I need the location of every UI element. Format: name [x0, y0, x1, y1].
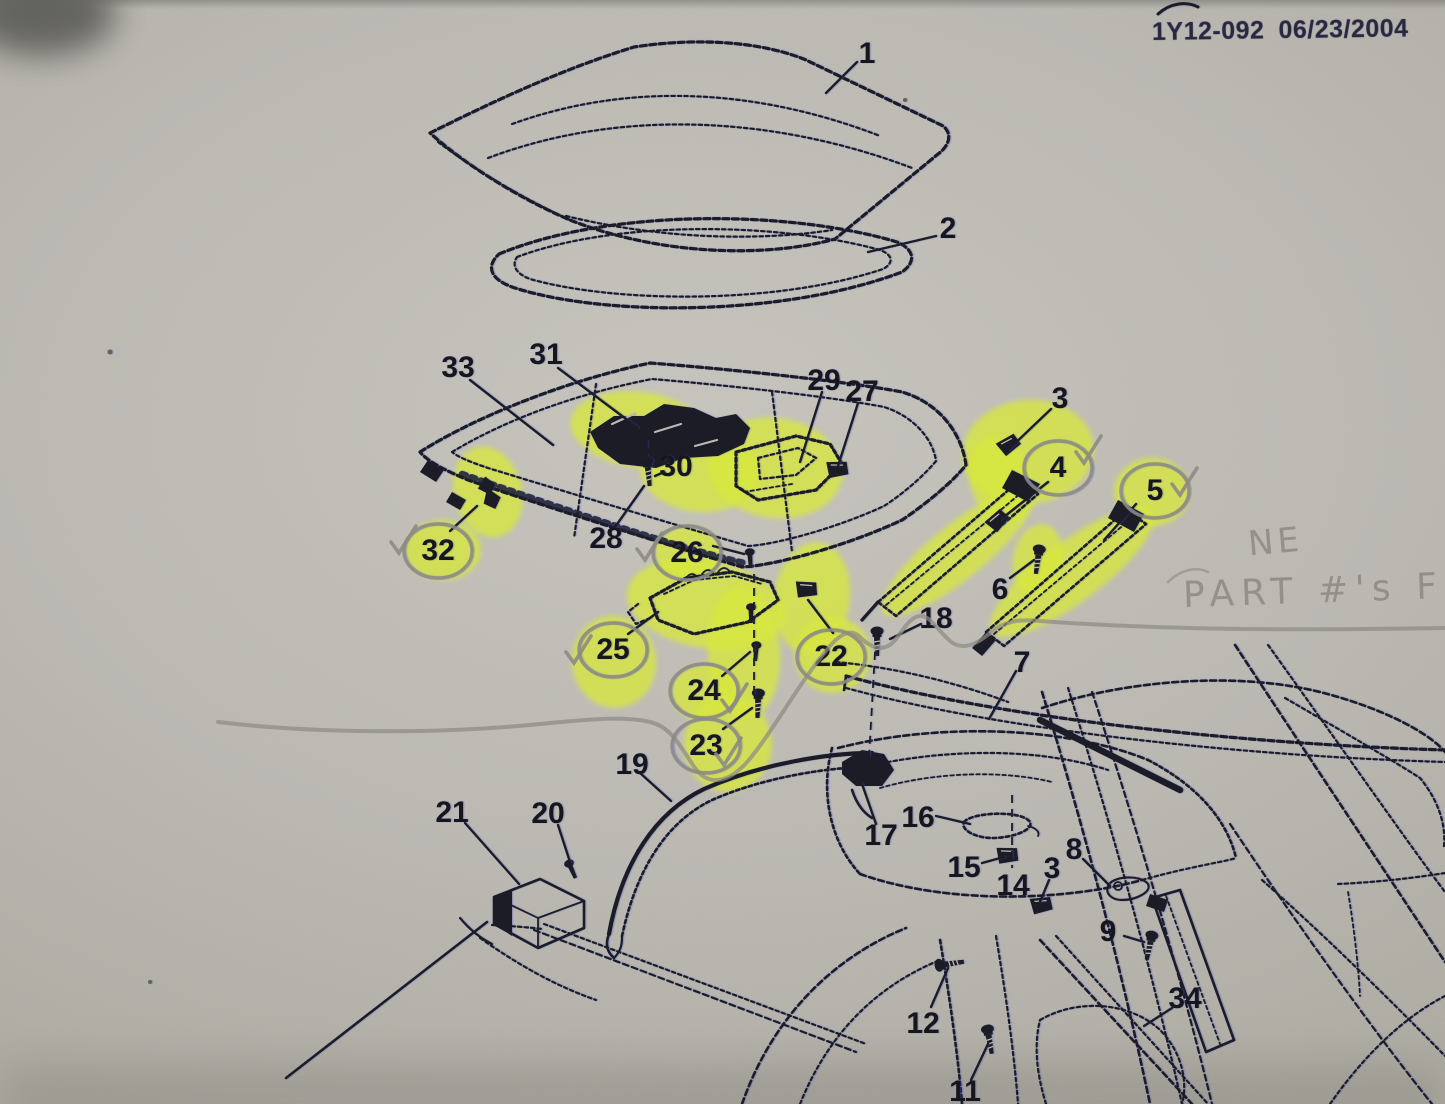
part-label-20: 20	[531, 797, 564, 830]
part-label-6: 6	[992, 573, 1009, 606]
exploded-parts-diagram: 1233312927345618732283026252422231921201…	[0, 0, 1445, 1104]
part-label-25: 25	[596, 633, 629, 666]
part-label-30: 30	[659, 450, 692, 483]
part-label-4: 4	[1050, 451, 1067, 484]
part-label-33: 33	[441, 351, 474, 384]
part-label-24: 24	[687, 674, 721, 707]
part-label-32: 32	[421, 534, 454, 567]
part-label-17: 17	[864, 819, 897, 852]
part-label-2: 2	[940, 212, 957, 245]
part-label-3: 3	[1044, 852, 1061, 885]
part-label-31: 31	[529, 338, 562, 371]
photo-of-parts-diagram: 1233312927345618732283026252422231921201…	[0, 0, 1445, 1104]
doc-code: 1Y12-092	[1152, 16, 1265, 46]
part-label-15: 15	[947, 851, 980, 884]
part-label-28: 28	[589, 522, 622, 555]
part-label-27: 27	[845, 375, 878, 408]
part-label-3: 3	[1052, 382, 1069, 415]
part-label-16: 16	[901, 801, 934, 834]
dust-speck	[148, 980, 152, 984]
part-label-9: 9	[1100, 915, 1117, 948]
part-label-14: 14	[996, 869, 1030, 902]
doc-date: 06/23/2004	[1278, 14, 1409, 44]
part-label-26: 26	[670, 536, 703, 569]
dust-speck	[108, 350, 113, 355]
part-label-19: 19	[615, 748, 648, 781]
dust-speck	[903, 98, 907, 102]
pencil-note-line1: NE	[1246, 520, 1304, 565]
part-label-21: 21	[435, 796, 468, 829]
part-label-11: 11	[949, 1075, 981, 1104]
part-label-7: 7	[1014, 646, 1031, 679]
document-header: 1Y12-09206/23/2004	[1152, 14, 1442, 47]
part-label-5: 5	[1147, 474, 1164, 507]
part-label-29: 29	[807, 364, 840, 397]
part-label-12: 12	[906, 1007, 939, 1040]
part-label-34: 34	[1168, 982, 1202, 1015]
part-label-8: 8	[1066, 833, 1083, 866]
part-label-1: 1	[859, 37, 876, 70]
